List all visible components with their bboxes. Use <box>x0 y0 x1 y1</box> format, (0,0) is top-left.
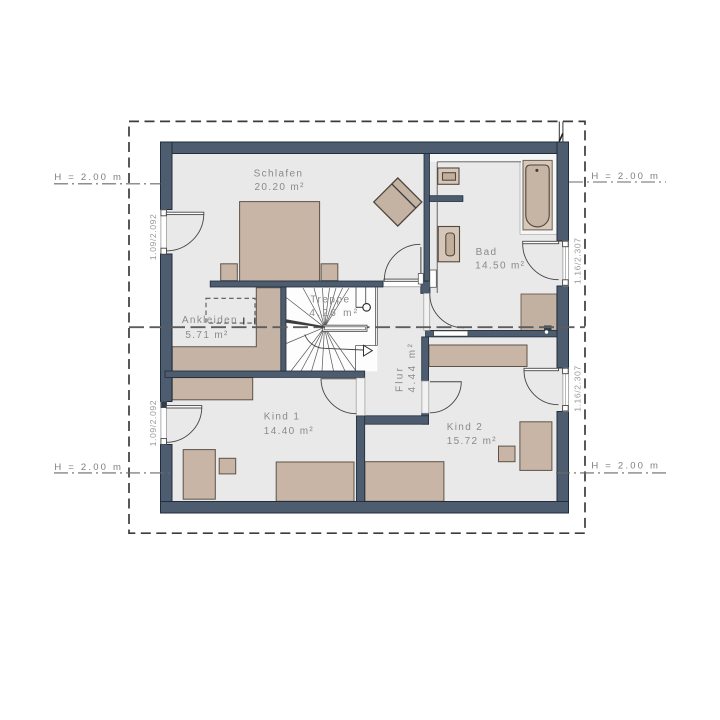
svg-text:14.40 m²: 14.40 m² <box>264 426 314 437</box>
svg-text:1.09/2.092: 1.09/2.092 <box>148 214 158 261</box>
svg-text:4.44 m²: 4.44 m² <box>407 342 418 393</box>
svg-text:Treppe: Treppe <box>310 294 350 305</box>
svg-text:Bad: Bad <box>476 247 498 258</box>
svg-text:15.72 m²: 15.72 m² <box>447 436 497 447</box>
svg-text:Schlafen: Schlafen <box>254 168 304 179</box>
svg-text:H = 2.00 m: H = 2.00 m <box>591 461 660 472</box>
svg-text:4.26 m²: 4.26 m² <box>309 308 359 319</box>
svg-text:1.16/2.307: 1.16/2.307 <box>572 365 582 412</box>
svg-text:1.16/2.307: 1.16/2.307 <box>572 238 582 285</box>
svg-text:5.71 m²: 5.71 m² <box>185 330 228 341</box>
svg-text:H = 2.00 m: H = 2.00 m <box>591 171 660 182</box>
svg-text:H = 2.00 m: H = 2.00 m <box>54 462 123 473</box>
svg-text:1.09/2.092: 1.09/2.092 <box>148 400 158 447</box>
svg-text:Kind 1: Kind 1 <box>264 411 300 422</box>
svg-text:14.50 m²: 14.50 m² <box>475 261 525 272</box>
svg-text:Kind 2: Kind 2 <box>447 422 483 433</box>
svg-text:Flur: Flur <box>394 366 405 392</box>
svg-text:Ankleiden: Ankleiden <box>182 315 238 326</box>
svg-text:H = 2.00 m: H = 2.00 m <box>54 172 123 183</box>
svg-text:20.20 m²: 20.20 m² <box>255 182 305 193</box>
